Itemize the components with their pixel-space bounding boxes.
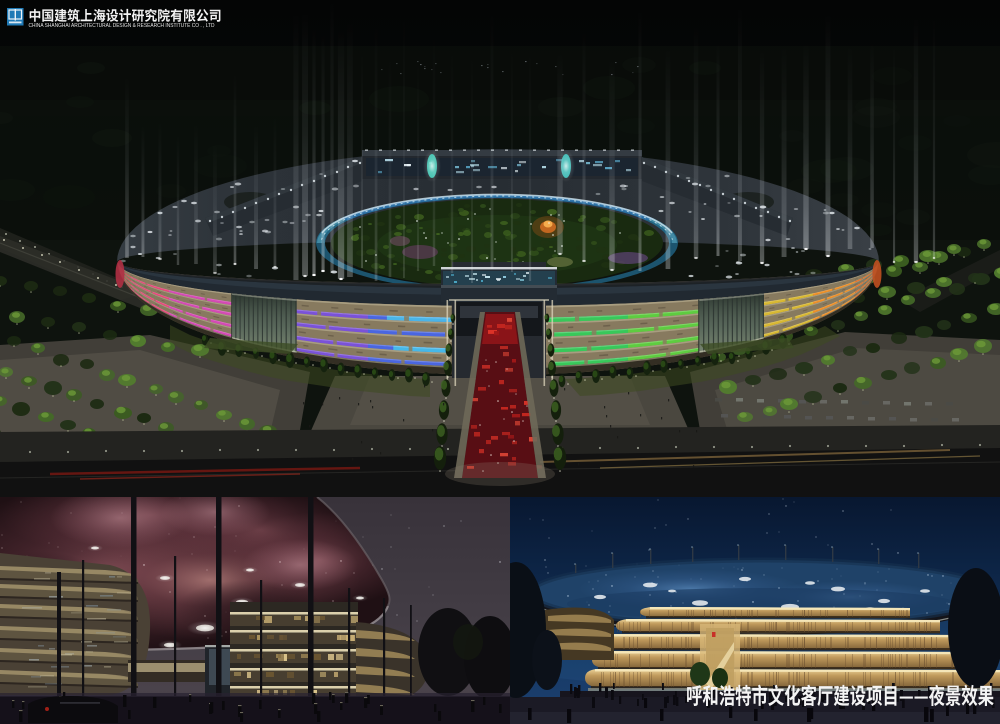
svg-text:CHINA SHANGHAI ARCHITECTURAL D: CHINA SHANGHAI ARCHITECTURAL DESIGN & RE… <box>29 23 215 29</box>
